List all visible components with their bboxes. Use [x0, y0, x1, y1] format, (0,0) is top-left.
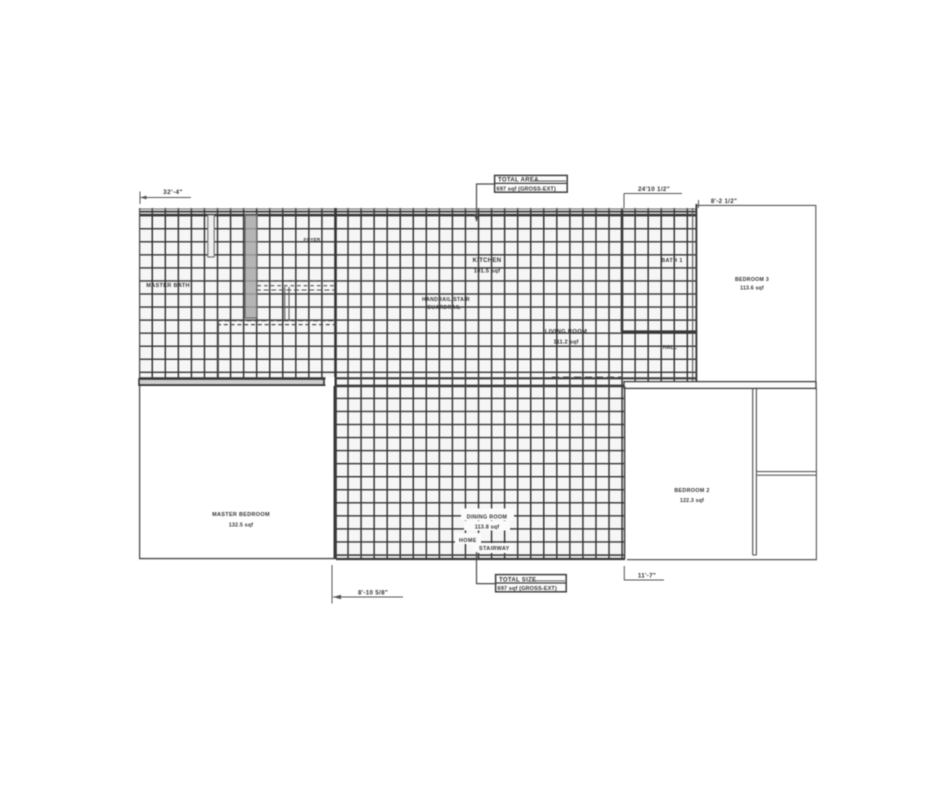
svg-text:KITCHEN: KITCHEN: [473, 258, 502, 264]
svg-text:113.8 sqf: 113.8 sqf: [475, 525, 500, 531]
svg-text:697 sqf (GROSS-EXT): 697 sqf (GROSS-EXT): [497, 187, 556, 193]
svg-text:DINING ROOM: DINING ROOM: [467, 515, 508, 521]
svg-text:BEDROOM 3: BEDROOM 3: [735, 277, 769, 283]
svg-text:TOTAL SIZE: TOTAL SIZE: [499, 577, 536, 583]
svg-text:113.6 sqf: 113.6 sqf: [740, 286, 764, 292]
svg-text:HOME: HOME: [459, 538, 477, 544]
svg-text:MASTER BATH: MASTER BATH: [146, 283, 190, 289]
svg-text:HANDRAIL/STAIR: HANDRAIL/STAIR: [422, 297, 470, 303]
svg-text:FOYER: FOYER: [304, 237, 321, 242]
svg-text:122.3 sqf: 122.3 sqf: [680, 498, 704, 504]
svg-text:111.2 sqf: 111.2 sqf: [553, 340, 578, 346]
svg-text:LIVING ROOM: LIVING ROOM: [545, 329, 587, 335]
svg-text:697 sqf (GROSS-EXT): 697 sqf (GROSS-EXT): [498, 586, 557, 592]
svg-text:MASTER BEDROOM: MASTER BEDROOM: [212, 512, 270, 518]
svg-text:HALL: HALL: [663, 345, 678, 351]
svg-text:BATH 1: BATH 1: [661, 258, 682, 264]
svg-text:24'10 1/2": 24'10 1/2": [638, 186, 670, 193]
svg-text:8'-2 1/2": 8'-2 1/2": [711, 198, 737, 205]
svg-text:32'-4": 32'-4": [163, 189, 183, 196]
svg-text:132.5 sqf: 132.5 sqf: [229, 523, 254, 529]
svg-text:101.5 sqf: 101.5 sqf: [474, 269, 501, 275]
svg-text:TOTAL AREA: TOTAL AREA: [498, 178, 539, 184]
svg-text:STAIRWAY: STAIRWAY: [479, 546, 510, 552]
svg-text:GUARDRAIL: GUARDRAIL: [427, 305, 461, 311]
svg-text:8'-10 5/8": 8'-10 5/8": [358, 590, 388, 597]
svg-text:BEDROOM 2: BEDROOM 2: [674, 488, 709, 494]
svg-text:11'-7": 11'-7": [638, 573, 656, 580]
